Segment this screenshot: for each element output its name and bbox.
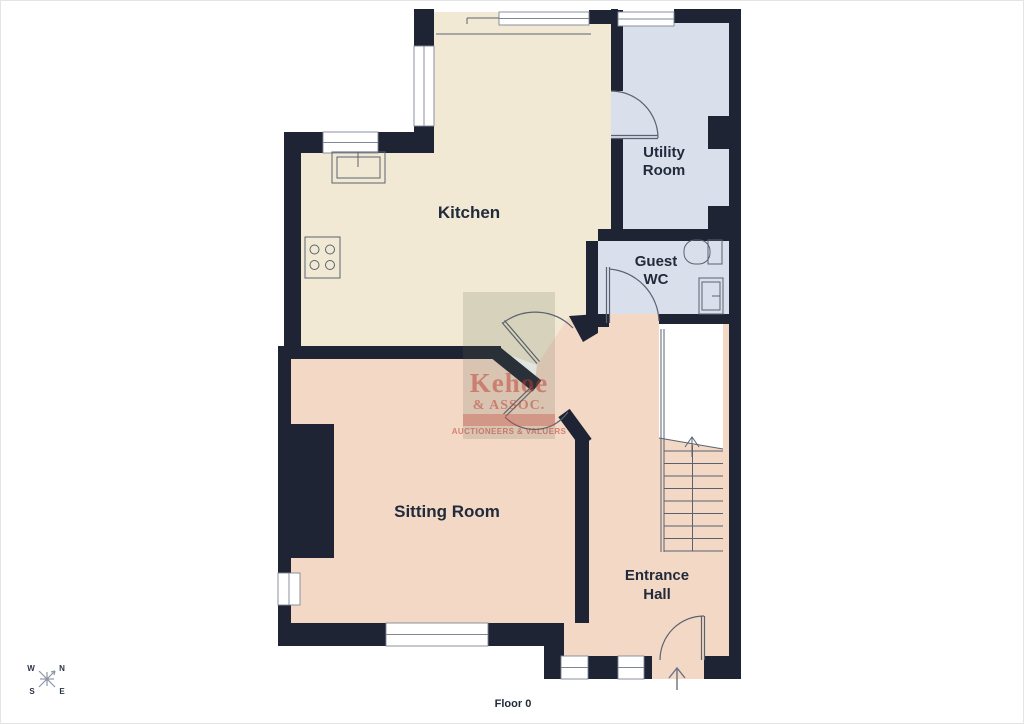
hall-south-window-2 [618, 656, 644, 679]
utility-door-threshold [611, 91, 623, 138]
compass-south-label: S [29, 687, 35, 696]
utility-room-label-line1: Utility [643, 144, 685, 161]
stairs-void [659, 324, 723, 449]
sitting-south-window [386, 623, 488, 646]
sitting-west-window [278, 573, 300, 605]
kitchen-left-window [414, 46, 434, 126]
guest-wc-label-line1: Guest [635, 253, 678, 270]
compass-rose: W N S E [27, 664, 65, 696]
watermark: Kehoe & ASSOC. AUCTIONEERS & VALUERS [452, 292, 567, 439]
hall-south-window-1 [561, 656, 588, 679]
compass-east-label: E [59, 687, 65, 696]
floorplan-canvas: Kehoe & ASSOC. AUCTIONEERS & VALUERS Kit… [1, 1, 1024, 724]
kitchen-nw-window [323, 132, 378, 153]
watermark-band [463, 414, 555, 426]
floorplan-page: Kehoe & ASSOC. AUCTIONEERS & VALUERS Kit… [0, 0, 1024, 724]
entrance-hall-label-line2: Hall [643, 586, 671, 603]
watermark-suffix: & ASSOC. [473, 398, 546, 413]
compass-north-label: N [59, 664, 65, 673]
entrance-hall-label-line1: Entrance [625, 567, 689, 584]
watermark-tagline: AUCTIONEERS & VALUERS [452, 427, 567, 436]
sitting-room-label: Sitting Room [394, 502, 500, 521]
utility-top-window [618, 12, 674, 26]
watermark-name: Kehoe [470, 368, 549, 398]
kitchen-label: Kitchen [438, 203, 500, 222]
compass-west-label: W [27, 664, 35, 673]
guest-wc-label-line2: WC [644, 271, 669, 288]
kitchen-floor [301, 12, 611, 365]
utility-room-label-line2: Room [643, 162, 686, 179]
kitchen-top-window [499, 12, 589, 25]
floor-label: Floor 0 [495, 698, 532, 710]
